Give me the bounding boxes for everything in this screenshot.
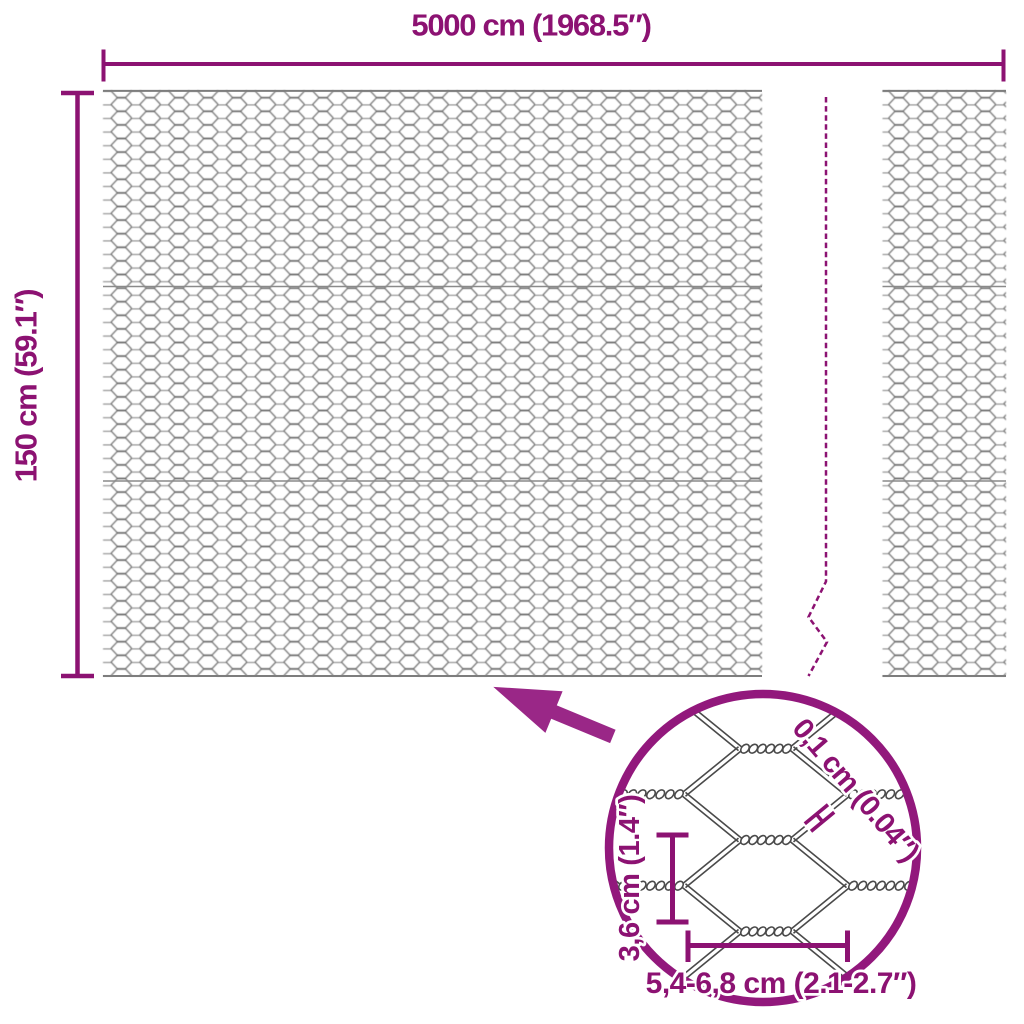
svg-text:3,6 cm (1.4″): 3,6 cm (1.4″): [614, 795, 646, 962]
svg-text:5,4-6,8 cm (2.1-2.7″): 5,4-6,8 cm (2.1-2.7″): [646, 967, 917, 1000]
svg-text:5000 cm (1968.5″): 5000 cm (1968.5″): [411, 8, 650, 43]
svg-text:150 cm (59.1″): 150 cm (59.1″): [9, 290, 44, 483]
